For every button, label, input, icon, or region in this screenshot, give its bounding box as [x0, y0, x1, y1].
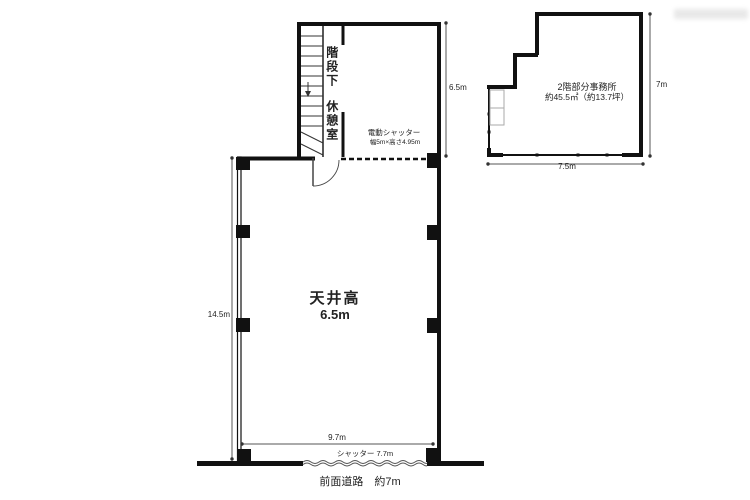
electric-shutter-label-line2: 幅5m×高さ4.95m [345, 139, 445, 146]
dimension-9-7m: 9.7m [319, 433, 355, 442]
dimension-14-5m: 14.5m [198, 310, 230, 319]
plan-2f-wall-dots [488, 113, 609, 157]
plan-1f-walls [237, 22, 441, 463]
electric-shutter-label-line1: 電動シャッター [344, 129, 444, 138]
floorplan-page: 天井高 6.5m 階段下 休憩室 電動シャッター 幅5m×高さ4.95m シャッ… [0, 0, 750, 500]
dimension-7-5m: 7.5m [549, 162, 585, 171]
stair-room-label-upper: 階段下 [324, 46, 338, 88]
dimension-7m: 7m [656, 80, 667, 89]
staircase [301, 36, 323, 155]
shutter-width-label: シャッター 7.7m [315, 450, 415, 459]
floorplan-linework [0, 0, 750, 500]
dimension-dots-1f [230, 21, 447, 460]
stair-direction-arrow [305, 82, 311, 97]
office-2f-label-line2: 約45.5㎡（約13.7坪） [537, 93, 637, 103]
dimension-6-5m: 6.5m [449, 83, 467, 92]
door-swing [313, 158, 339, 186]
dimension-lines-1f [232, 23, 446, 459]
office-2f-label-line1: 2階部分事務所 [544, 82, 630, 92]
ceiling-height-value: 6.5m [300, 308, 370, 323]
wall-left-double [238, 157, 242, 462]
faded-watermark [674, 9, 748, 19]
front-road-label: 前面道路 約7m [310, 476, 410, 489]
stair-room-label-lower: 休憩室 [324, 100, 338, 142]
shutter-wavy-line [303, 461, 427, 467]
plan-2f-counter [490, 90, 504, 125]
ceiling-height-label: 天井高 [300, 290, 370, 307]
